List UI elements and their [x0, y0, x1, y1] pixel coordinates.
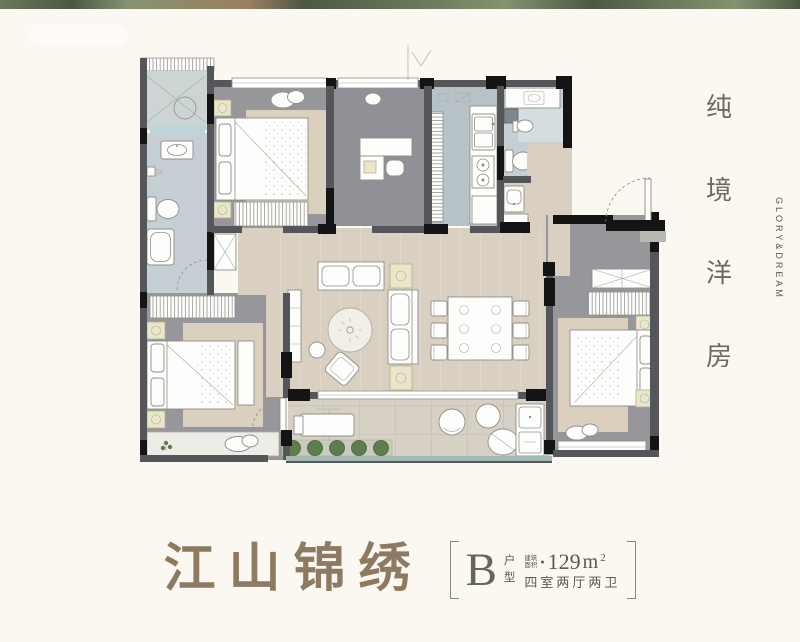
dimension-mark: [408, 45, 431, 80]
patio-chair-icon: [488, 429, 518, 455]
vanity-icon: [505, 88, 560, 108]
window: [338, 78, 418, 88]
bed-icon: [216, 118, 308, 200]
washbasin-icon: [161, 141, 193, 159]
unit-detail: 建筑 面积 ● 129m2 四室两厅两卫: [524, 551, 620, 589]
bracket-right: [627, 541, 636, 599]
side-table-icon: [390, 366, 412, 390]
brochure-page: 纯 境 洋 房 GLORY&DREAM 江山锦绣 B 户 型 建筑 面积 ● 1…: [0, 0, 800, 642]
area-prefix-bottom: 面积: [524, 562, 537, 569]
wardrobe-icon: [234, 202, 308, 226]
nightstand-icon: [147, 322, 165, 339]
bed-icon: [147, 341, 235, 409]
side-title: 纯 境 洋 房: [704, 95, 734, 370]
patio-chair-icon: [439, 409, 465, 435]
stool-icon: [364, 161, 376, 173]
side-table-icon: [390, 264, 412, 288]
cabinet-icon: [516, 404, 544, 456]
chair-icon: [386, 160, 404, 176]
wall-basin-icon: [513, 120, 533, 132]
door-panel: [280, 398, 286, 432]
room-bedroom-2: [546, 212, 653, 455]
room-master-bedroom: [145, 293, 286, 460]
area-number: 129: [548, 551, 581, 573]
entry-step: [640, 231, 666, 242]
bay-window: [147, 432, 279, 456]
balcony-rail: [286, 456, 552, 461]
project-name: 江山锦绣: [164, 544, 424, 596]
wardrobe-icon: [150, 296, 235, 318]
bracket-left: [450, 541, 459, 599]
room-study: [334, 86, 426, 226]
area-exponent: 2: [600, 552, 606, 564]
unit-info: B 户 型 建筑 面积 ● 129m2 四室两厅两卫: [450, 540, 637, 600]
room-kitchen: [430, 86, 498, 226]
unit-type-bottom: 型: [504, 573, 516, 585]
nightstand-icon: [147, 411, 165, 428]
dining-table-icon: [431, 297, 529, 360]
rug-round: [328, 308, 372, 352]
plant-icon: [365, 93, 381, 105]
side-title-char: 房: [704, 344, 734, 370]
door-panel: [645, 179, 651, 221]
bench-icon: [238, 341, 254, 405]
washer-icon: [504, 186, 524, 212]
area-prefix-top: 建筑: [524, 555, 537, 562]
patio-chair-icon: [476, 404, 500, 428]
layout-description: 四室两厅两卫: [524, 576, 620, 589]
sink-icon: [472, 114, 495, 150]
room-bathroom-1: [145, 133, 208, 293]
nightstand-icon: [214, 100, 231, 116]
room-laundry: [145, 72, 208, 133]
side-table-icon: [309, 342, 325, 358]
unit-type-label: 户 型: [504, 556, 516, 584]
window: [232, 78, 328, 88]
nightstand-icon: [214, 202, 231, 218]
stove-icon: [472, 156, 494, 188]
side-title-char: 洋: [704, 261, 734, 287]
planter-icon: [282, 440, 392, 456]
area-prefix: 建筑 面积: [524, 555, 537, 570]
footer: 江山锦绣 B 户 型 建筑 面积 ● 129m2 四室两厅两卫: [0, 536, 800, 604]
side-subtitle: GLORY&DREAM: [774, 197, 784, 300]
bullet-icon: ●: [540, 558, 544, 566]
cabinet-icon: [472, 196, 497, 224]
lounge-chair-icon: [294, 409, 354, 441]
sliding-window: [318, 391, 518, 399]
area-unit: m: [583, 552, 599, 572]
bathtub-icon: [147, 229, 174, 265]
unit-type-top: 户: [504, 556, 516, 568]
wardrobe-icon: [588, 292, 653, 315]
railing-hatch: [142, 58, 214, 71]
side-title-char: 境: [704, 178, 734, 204]
room-balcony: [282, 397, 550, 457]
area-row: 建筑 面积 ● 129m2: [524, 551, 620, 573]
unit-letter: B: [466, 549, 497, 591]
side-title-char: 纯: [704, 95, 734, 121]
closet-icon: [592, 269, 653, 288]
shoe-cabinet-icon: [214, 234, 236, 270]
